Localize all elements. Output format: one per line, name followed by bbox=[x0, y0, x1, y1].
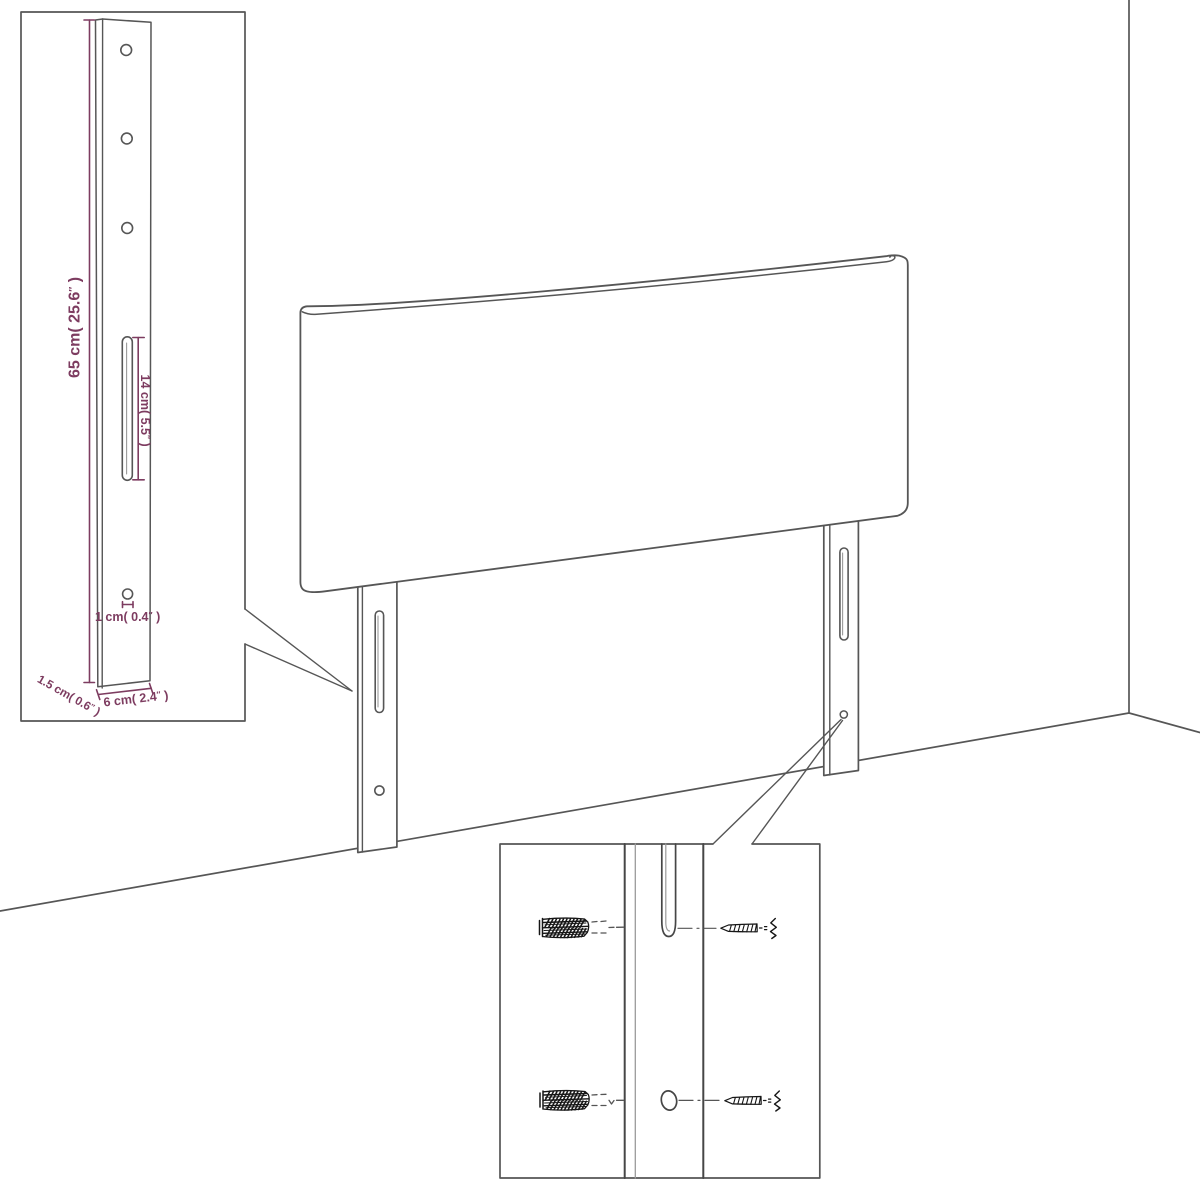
svg-text:65 cm( 25.6″ ): 65 cm( 25.6″ ) bbox=[67, 277, 84, 378]
